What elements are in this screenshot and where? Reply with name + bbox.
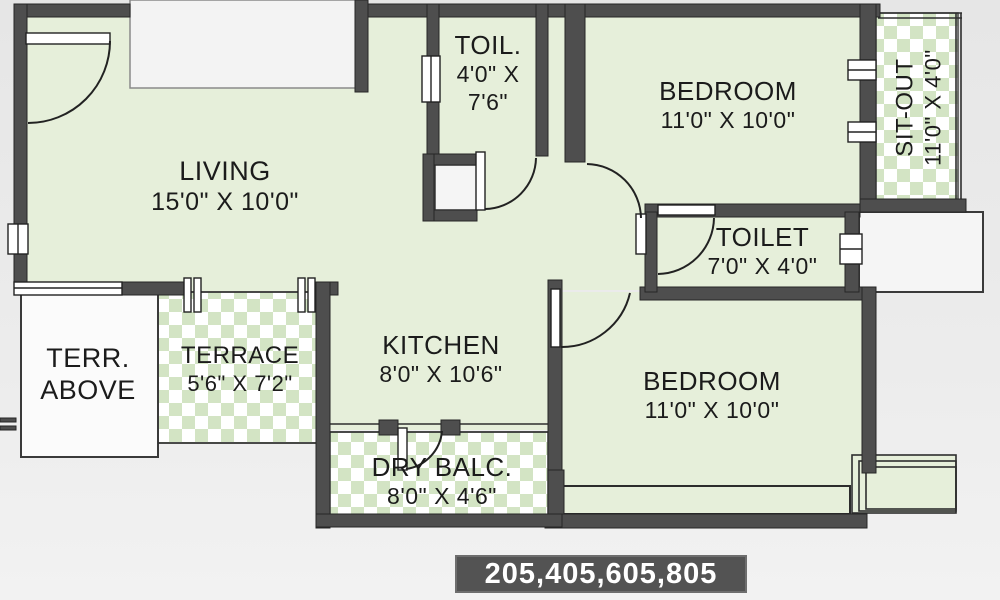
unit-numbers-text: 205,405,605,805 (485, 558, 718, 591)
room-dimensions: 11'0" X 4'0" (920, 13, 946, 203)
room-dimensions: ABOVE (23, 374, 153, 406)
room-dimensions: 7'0" X 4'0" (660, 253, 865, 281)
room-dimensions: 7'6" (438, 89, 538, 117)
room-label-terrace: TERRACE 5'6" X 7'2" (160, 342, 320, 397)
room-dimensions: 11'0" X 10'0" (577, 397, 847, 425)
room-dimensions: 5'6" X 7'2" (160, 371, 320, 397)
room-label-sit-out: SIT-OUT 11'0" X 4'0" (891, 13, 946, 203)
room-label-toil: TOIL. 4'0" X 7'6" (438, 30, 538, 116)
room-name: KITCHEN (332, 330, 550, 361)
unit-numbers-badge: 205,405,605,805 (455, 555, 747, 593)
room-name: BEDROOM (577, 366, 847, 397)
room-name: TERRACE (160, 342, 320, 371)
room-label-dry-balcony: DRY BALC. 8'0" X 4'6" (330, 452, 554, 511)
room-dimensions: 8'0" X 10'6" (332, 361, 550, 389)
room-name: TOIL. (438, 30, 538, 61)
room-name: LIVING (95, 155, 355, 187)
room-dimensions: 8'0" X 4'6" (330, 483, 554, 511)
room-label-kitchen: KITCHEN 8'0" X 10'6" (332, 330, 550, 389)
room-label-bedroom-top: BEDROOM 11'0" X 10'0" (588, 76, 868, 135)
room-label-toilet: TOILET 7'0" X 4'0" (660, 222, 865, 281)
floor-plan-screenshot: LIVING 15'0" X 10'0" TOIL. 4'0" X 7'6" B… (0, 0, 1000, 600)
room-label-living: LIVING 15'0" X 10'0" (95, 155, 355, 217)
room-label-terrace-above: TERR. ABOVE (23, 342, 153, 407)
room-name: TOILET (660, 222, 865, 253)
room-name: TERR. (23, 342, 153, 374)
room-dimensions: 11'0" X 10'0" (588, 107, 868, 135)
room-name: DRY BALC. (330, 452, 554, 483)
room-name: SIT-OUT (891, 13, 920, 203)
room-label-bedroom-bottom: BEDROOM 11'0" X 10'0" (577, 366, 847, 425)
room-name: BEDROOM (588, 76, 868, 107)
room-dimensions: 4'0" X (438, 61, 538, 89)
room-dimensions: 15'0" X 10'0" (95, 187, 355, 217)
